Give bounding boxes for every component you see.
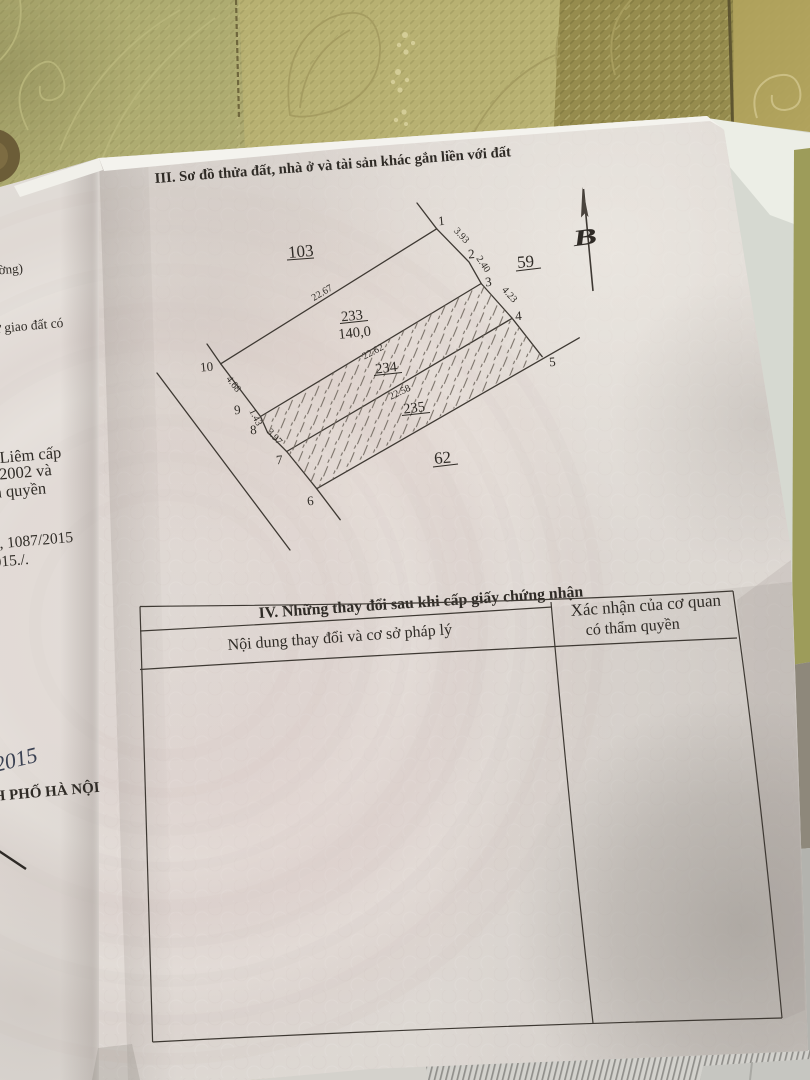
svg-text:9: 9 [233,402,241,418]
svg-text:015./.: 015./. [0,551,30,571]
svg-text:5: 5 [548,354,556,370]
svg-text:3: 3 [484,274,492,290]
svg-text:10: 10 [199,359,213,375]
svg-text:B: B [570,223,599,252]
svg-text:140,0: 140,0 [338,323,372,342]
svg-text:1: 1 [437,213,445,229]
svg-text:ường): ường) [0,260,23,278]
